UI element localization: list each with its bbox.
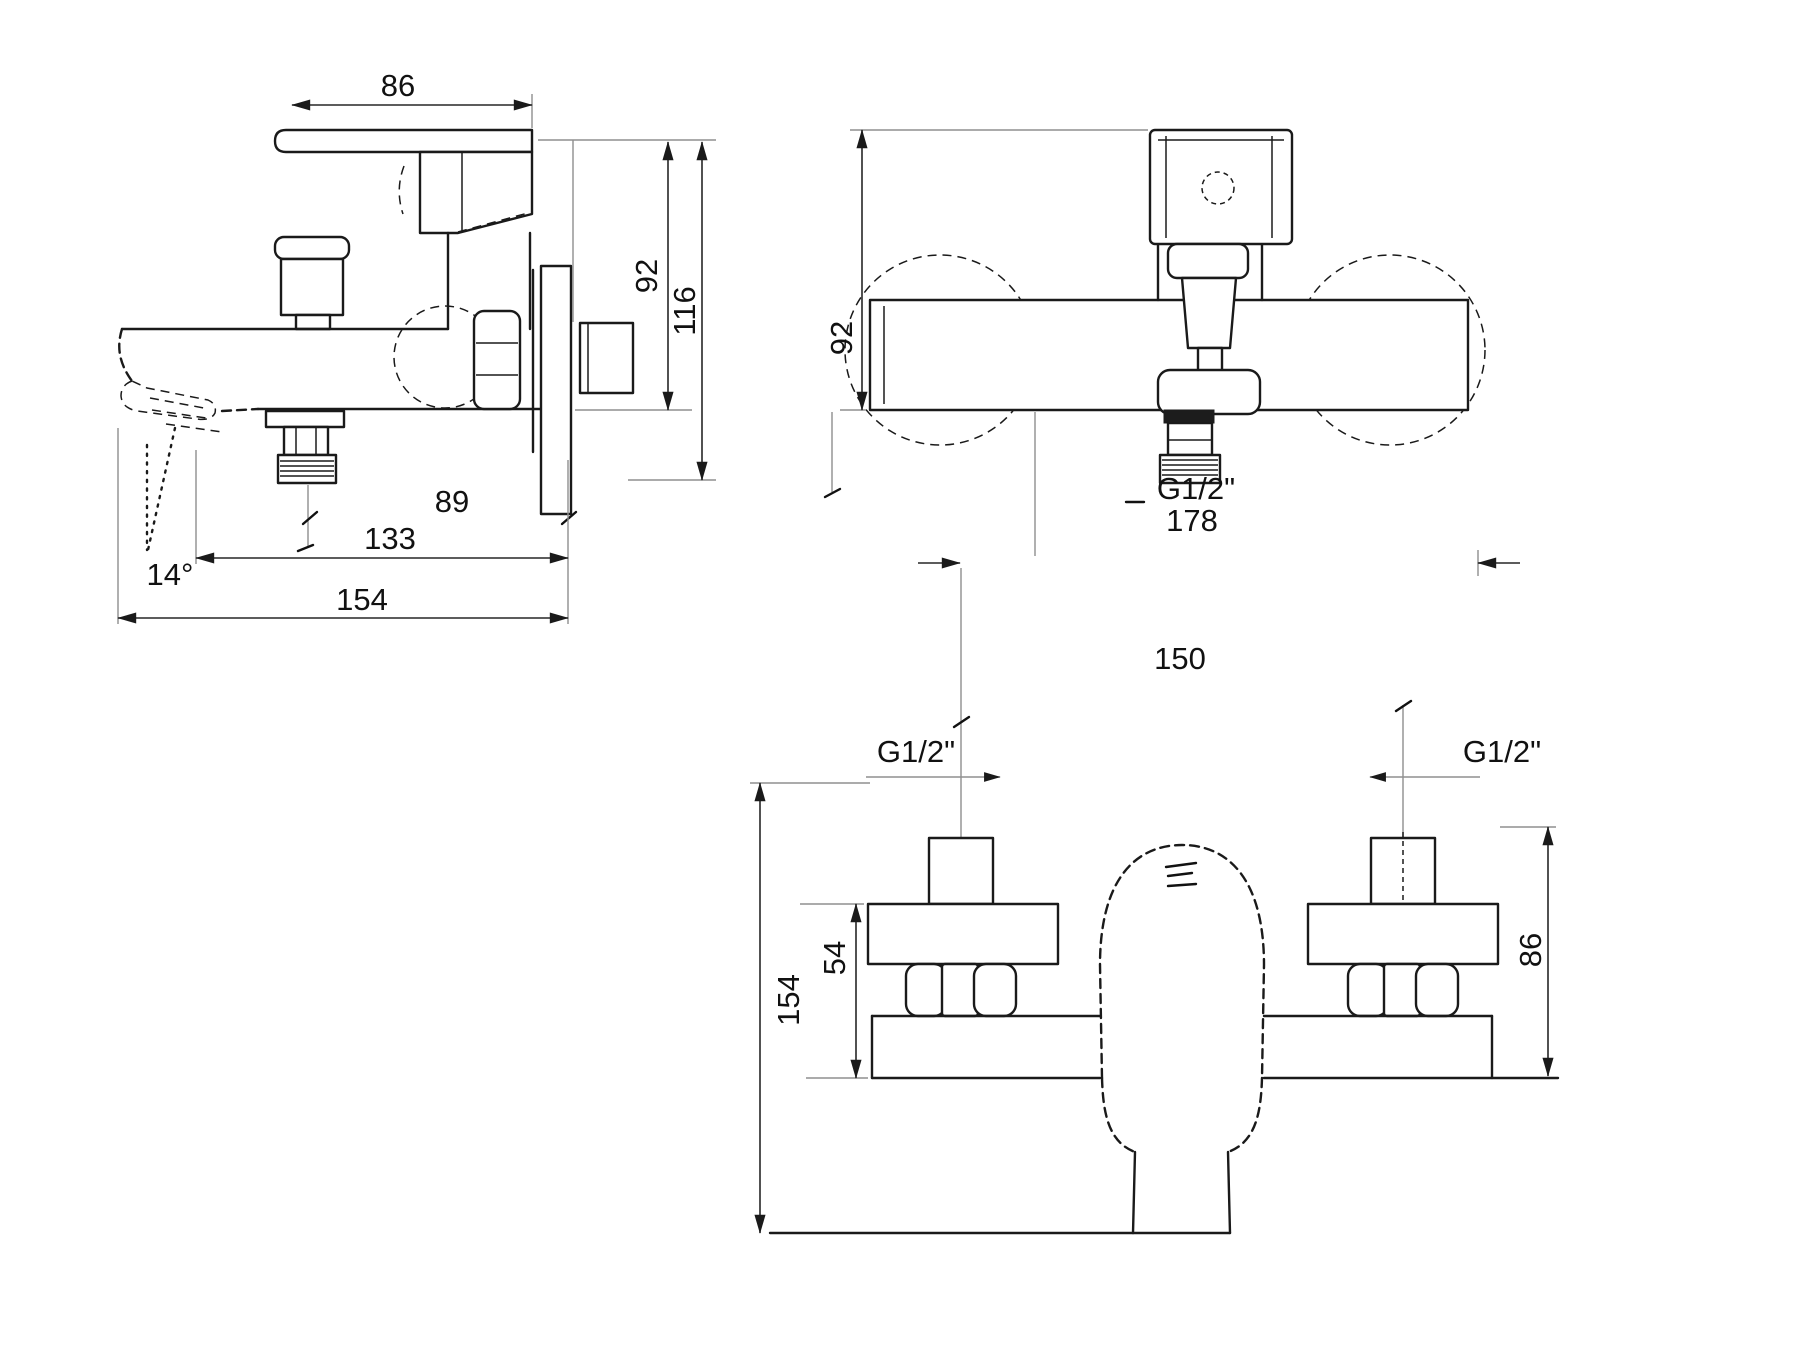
thread-label-left-inlet: G1/2" (877, 734, 955, 769)
left-hex-nut (906, 964, 1016, 1016)
seal-ring (1164, 410, 1214, 423)
dim-tick (303, 512, 317, 524)
dim-label-overall-reach: 154 (336, 582, 388, 617)
dim-label-body-width: 86 (1513, 933, 1548, 967)
lever-handle (275, 130, 532, 233)
right-escutcheon-plate (1308, 904, 1498, 964)
dim-label-spout-reach: 133 (364, 521, 416, 556)
right-hex-nut (1348, 964, 1458, 1016)
brand-logo-mark (1166, 863, 1196, 886)
dim-label-overall-height: 116 (667, 286, 702, 335)
spout-taper-hidden (119, 329, 132, 381)
mixer-body-plan (872, 1016, 1558, 1078)
dim-label-mounting-height: 92 (824, 321, 859, 355)
angle-label-spout: 14° (147, 557, 194, 592)
dim-label-overall-depth: 154 (771, 974, 806, 1026)
dim-label-connection-spacing: 150 (1154, 641, 1206, 676)
dim-label-overall-width: 178 (1166, 503, 1218, 538)
thread-label-front: G1/2" (1157, 471, 1235, 506)
dim-label-escutcheon-depth: 54 (817, 941, 852, 975)
dim-label-body-height: 92 (629, 259, 664, 293)
handle-plan-outline (1100, 845, 1264, 1233)
dim-label-handle-length: 86 (381, 68, 415, 103)
drawing-sheet: 86 (0, 0, 1800, 1355)
dim-label-outlet-to-wall: 89 (435, 484, 469, 519)
left-escutcheon-plate (868, 904, 1058, 964)
bottom-plan-view: 150 G1/2" G1/2" (750, 568, 1558, 1233)
technical-drawing-canvas: 86 (0, 0, 1800, 1355)
spout-angle-reference: 14° (147, 428, 194, 592)
connection-nut (474, 311, 520, 409)
side-view: 86 (118, 68, 716, 624)
hand-shower-fitting (580, 323, 633, 393)
left-inlet-nipple (929, 838, 993, 904)
front-view: G1/2" 178 92 (824, 130, 1520, 576)
spout-tip-outline (121, 381, 222, 432)
thread-label-right-inlet: G1/2" (1463, 734, 1541, 769)
shower-hose-outlet (266, 411, 344, 551)
wall-flange-plate (541, 266, 571, 514)
diverter-knob (275, 237, 349, 329)
